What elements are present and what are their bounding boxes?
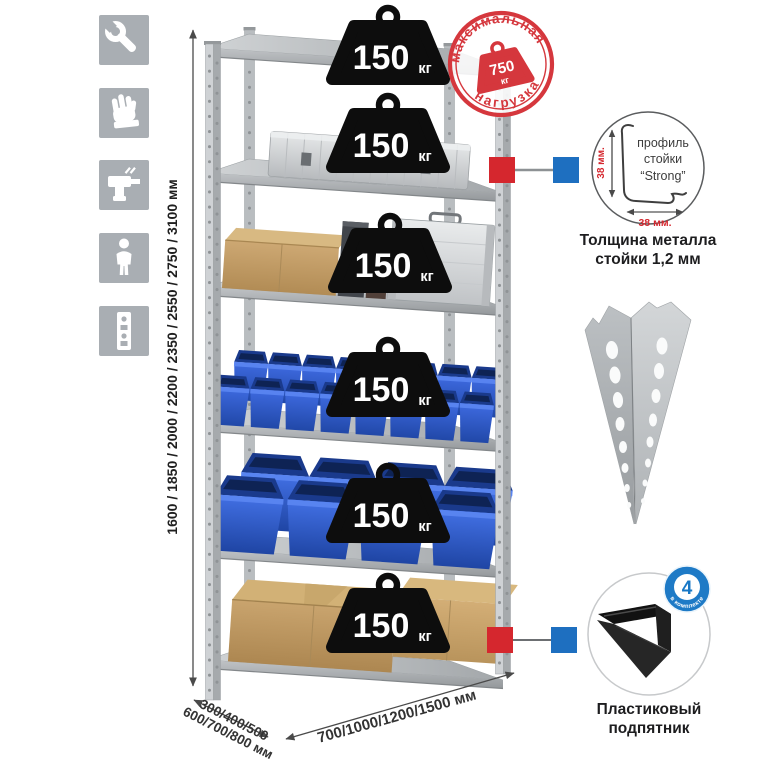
profile-detail: 38 мм. 38 мм. профиль стойки “Strong” То… — [580, 112, 717, 268]
profile-dim-vertical: 38 мм. — [596, 147, 607, 179]
profile-label-1: профиль — [637, 136, 689, 150]
callout-bottom — [487, 627, 577, 653]
profile-dim-horizontal: 38 мм. — [638, 217, 671, 229]
width-label: 700/1000/1200/1500 мм — [316, 687, 479, 747]
load-badge — [332, 340, 444, 411]
corner-post-image — [585, 302, 691, 524]
rack-illustration: 150 кг 1600 / 1850 / 2000 / 2200 / 2350 … — [0, 0, 765, 765]
foot-caption-1: Пластиковый — [597, 701, 702, 718]
depth-dimension: 300/400/500 600/700/800 мм — [181, 696, 276, 762]
marker-red-bottom — [487, 627, 513, 653]
load-badge — [332, 8, 444, 79]
marker-blue-top — [553, 157, 579, 183]
profile-label-3: “Strong” — [640, 169, 685, 183]
callout-top — [489, 157, 579, 183]
profile-label-2: стойки — [644, 152, 682, 166]
max-load-stamp: максимальная нагрузка 750 кг — [438, 0, 563, 125]
product-infographic: 150 кг 1600 / 1850 / 2000 / 2200 / 2350 … — [0, 0, 765, 765]
profile-caption-2: стойки 1,2 мм — [595, 251, 700, 268]
marker-blue-bottom — [551, 627, 577, 653]
kit-badge-value: 4 — [682, 578, 693, 599]
load-badge — [332, 96, 444, 167]
marker-red-top — [489, 157, 515, 183]
profile-caption-1: Толщина металла — [580, 232, 717, 249]
kit-badge: 4 в комплекте — [664, 566, 710, 612]
height-dimension: 1600 / 1850 / 2000 / 2200 / 2350 / 2550 … — [164, 30, 193, 686]
height-dimension-label: 1600 / 1850 / 2000 / 2200 / 2350 / 2550 … — [164, 179, 180, 534]
foot-detail: 4 в комплекте Пластиковый подпятник — [588, 566, 710, 737]
foot-caption-2: подпятник — [608, 720, 689, 737]
